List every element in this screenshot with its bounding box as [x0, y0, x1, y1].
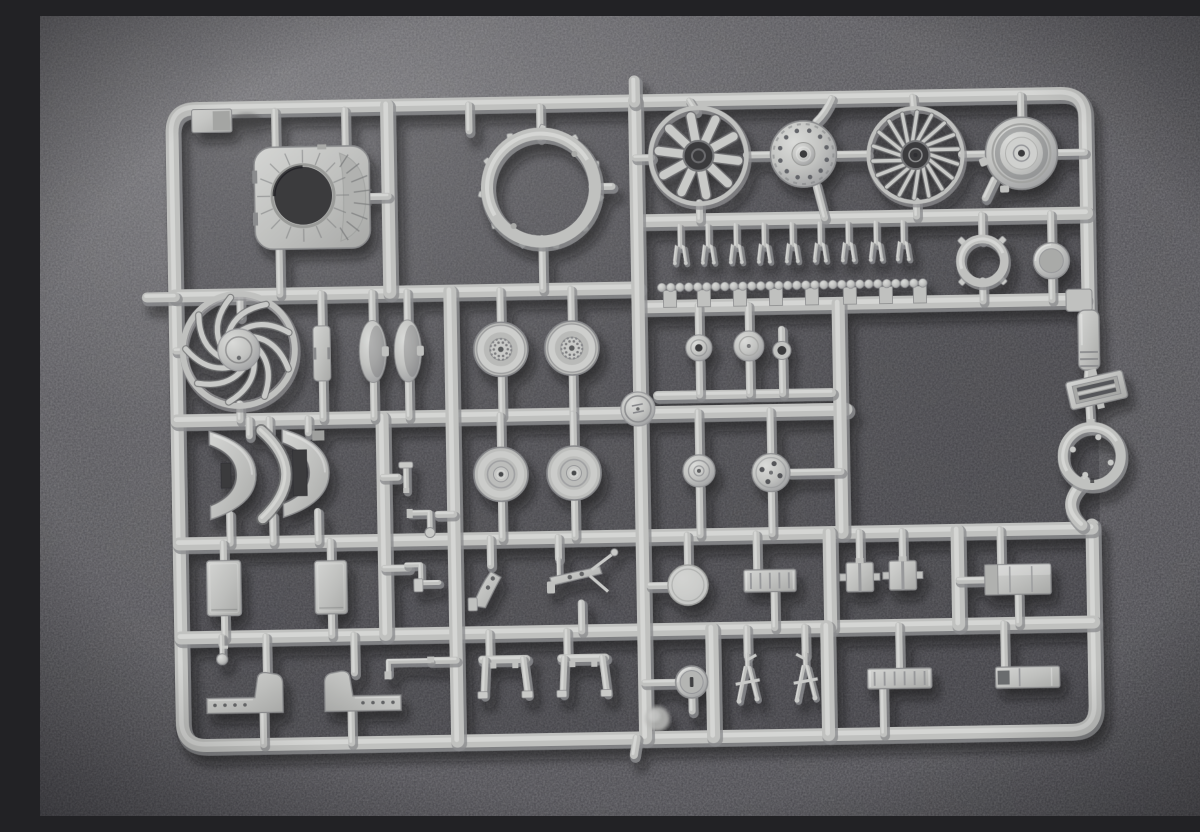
- sprue-scene: [40, 16, 1200, 816]
- model-kit-sprue-photo: [40, 16, 1200, 816]
- vignette: [40, 16, 1200, 816]
